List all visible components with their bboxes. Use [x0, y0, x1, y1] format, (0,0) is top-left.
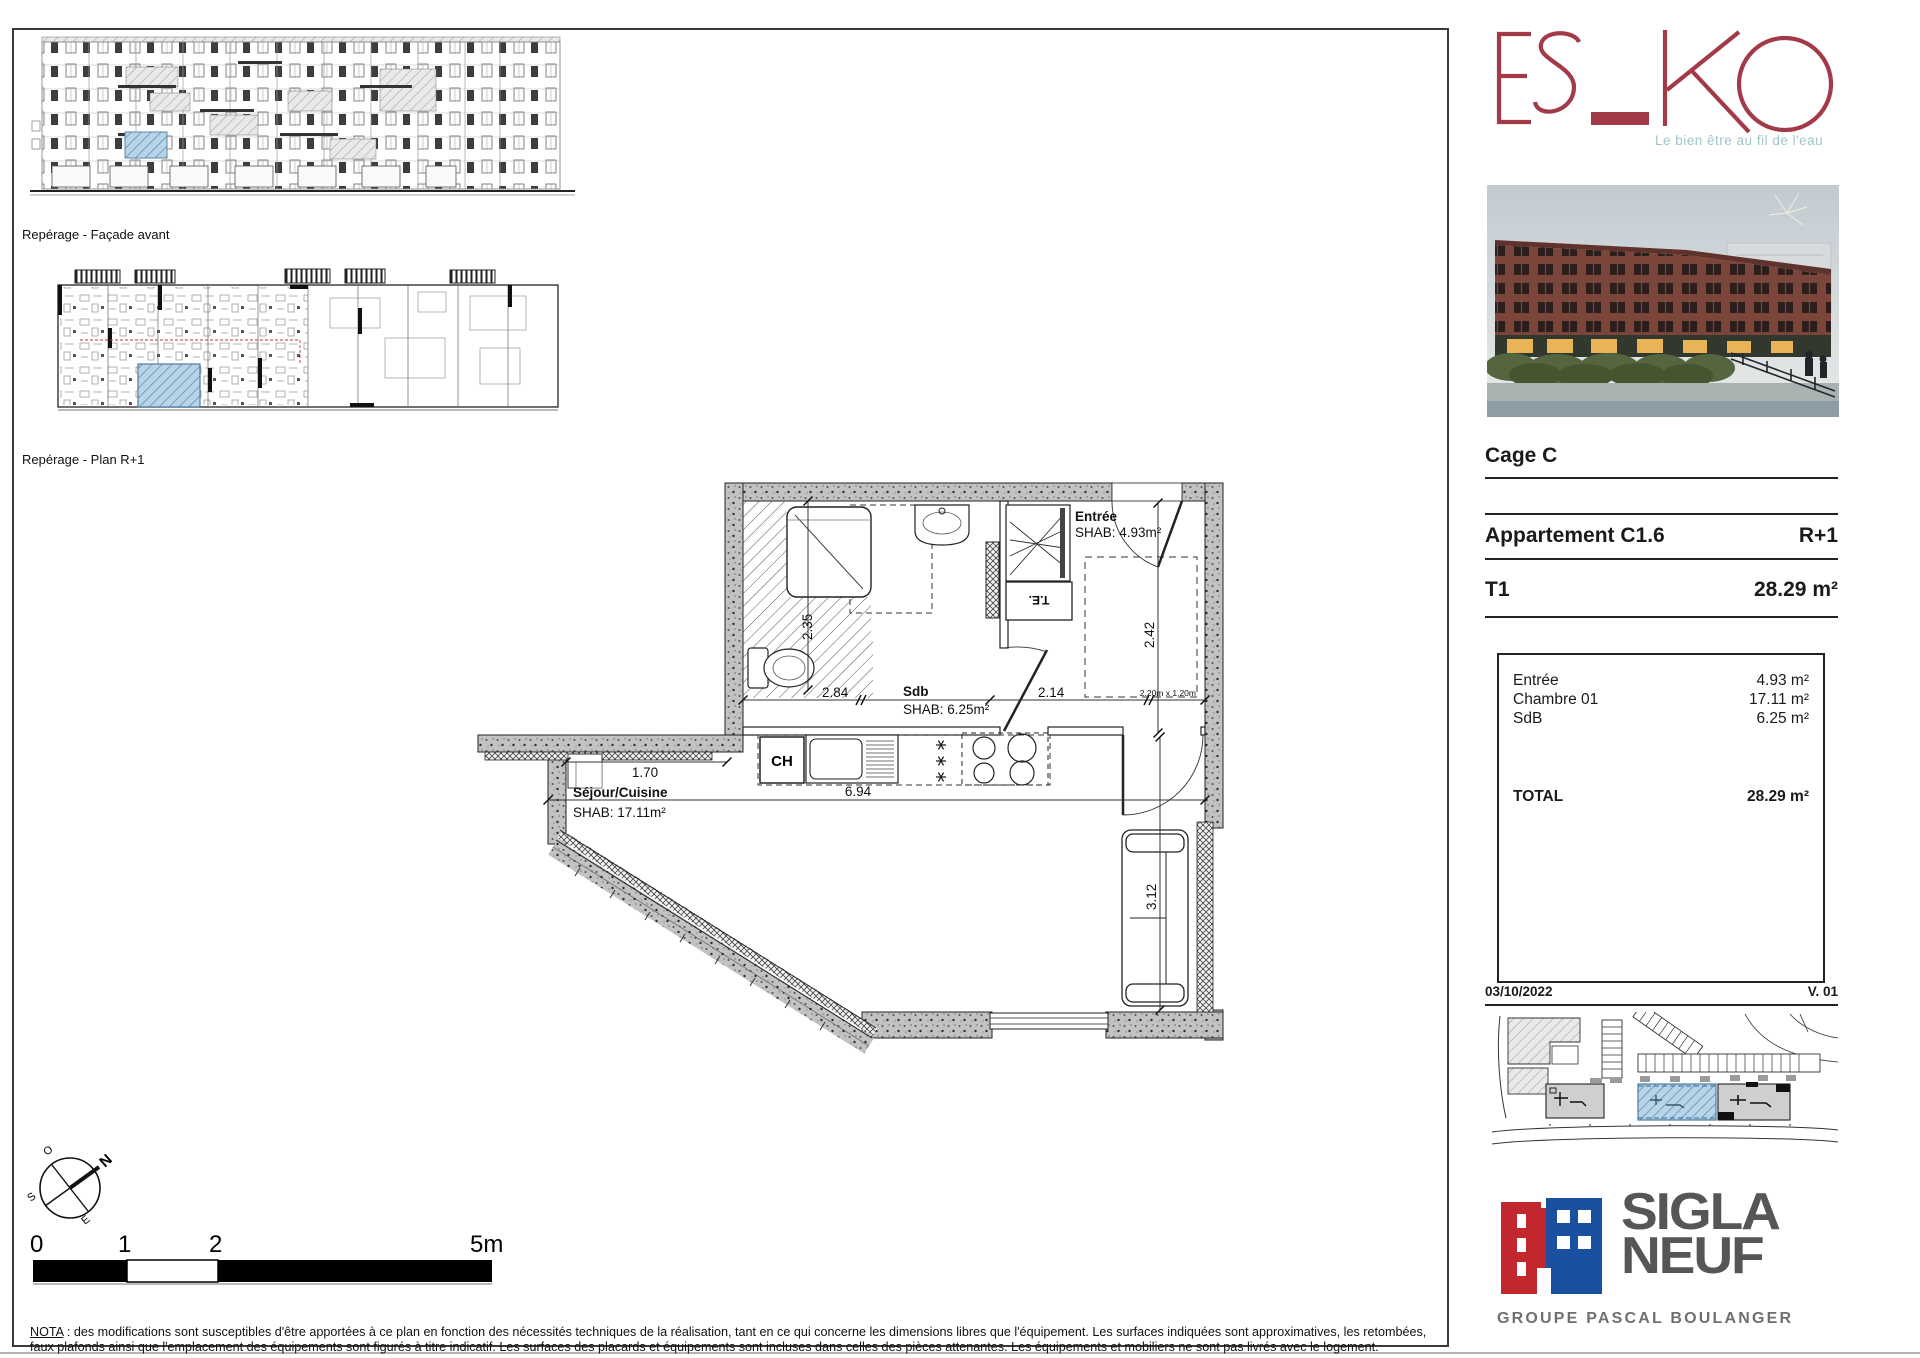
rule-5: [1485, 1004, 1838, 1006]
nota-label: NOTA: [30, 1325, 63, 1339]
total-label: TOTAL: [1513, 788, 1563, 806]
facade-highlighted-unit: [125, 132, 167, 158]
brand-name-2: NEUF: [1621, 1234, 1779, 1278]
area-table: Entrée 4.93 m² Chambre 01 17.11 m² SdB 6…: [1497, 653, 1825, 983]
scale-bar: 0 1 2 5m: [30, 1228, 510, 1290]
diagonal-strip: [1633, 1012, 1703, 1059]
kitchen: CH: [758, 733, 1050, 785]
nota-text: NOTA : des modifications sont susceptibl…: [30, 1325, 1430, 1356]
sejour-shab: SHAB: 17.11m²: [573, 805, 666, 820]
wardrobe: [1006, 505, 1070, 581]
facade-caption: Repérage - Façade avant: [22, 227, 169, 242]
te-label: T.E.: [1029, 593, 1050, 607]
washbasin: [915, 505, 969, 545]
compass-s: S: [25, 1190, 38, 1204]
stairs-strip: [1602, 1020, 1622, 1078]
rule-1: [1485, 477, 1838, 479]
esko-logo: ES_KO Le bien être au fil de l'eau: [1487, 26, 1839, 150]
apartment-level: R+1: [1799, 524, 1838, 548]
scale-2: 2: [209, 1231, 222, 1258]
esko-underscore: [1591, 112, 1649, 125]
compass-o: O: [41, 1143, 56, 1158]
dim-sejour-width: 6.94: [845, 784, 872, 799]
kitchen-sink: [806, 735, 898, 783]
total-value: 28.29 m²: [1747, 788, 1809, 806]
area-value: 17.11 m²: [1749, 690, 1809, 709]
shower: [787, 507, 871, 597]
rule-3: [1485, 558, 1838, 560]
site-plan: [1490, 1012, 1840, 1162]
overview-highlighted-unit: [138, 364, 200, 407]
sdb-label: Sdb: [903, 684, 929, 699]
date: 03/10/2022: [1485, 984, 1553, 999]
rule-4: [1485, 616, 1838, 618]
compass-rose: N O S E: [25, 1140, 125, 1235]
nota-body: : des modifications sont susceptibles d'…: [30, 1325, 1426, 1355]
apartment-row: Appartement C1.6 R+1: [1485, 524, 1838, 548]
apartment-floorplan: T.E. CH: [440, 470, 1250, 1060]
compass-e: E: [79, 1213, 92, 1227]
area-value: 6.25 m²: [1756, 709, 1809, 728]
entree-shab: SHAB: 4.93m²: [1075, 525, 1162, 540]
area-label: Entrée: [1513, 671, 1559, 690]
scale-1: 1: [118, 1231, 131, 1258]
date-row: 03/10/2022 V. 01: [1485, 984, 1838, 999]
scale-5m: 5m: [470, 1231, 503, 1258]
sofa: [1122, 830, 1188, 1006]
ch-label: CH: [771, 753, 793, 770]
te-box: T.E.: [1006, 582, 1072, 620]
dim-sdb-height: 2.35: [800, 614, 815, 640]
dim-wall: 1.70: [632, 765, 658, 780]
dim-sdb-width: 2.84: [822, 685, 849, 700]
entree-label: Entrée: [1075, 509, 1118, 524]
facade-elevation-drawing: [30, 35, 575, 227]
area-label: Chambre 01: [1513, 690, 1598, 709]
dim-entree-width: 2.14: [1038, 685, 1065, 700]
siteplan-building-highlighted: [1638, 1084, 1716, 1120]
apartment-type: T1: [1485, 578, 1510, 602]
area-label: SdB: [1513, 709, 1542, 728]
plan-sheet: Repérage - Façade avant: [0, 0, 1920, 1358]
version: V. 01: [1808, 984, 1838, 999]
area-row-entree: Entrée 4.93 m²: [1513, 671, 1809, 690]
toilet: [748, 648, 814, 688]
window-note: 2.20m x 1.20m: [1140, 688, 1196, 698]
esko-tagline: Le bien être au fil de l'eau: [1655, 133, 1823, 148]
apartment-total-area: 28.29 m²: [1754, 578, 1838, 602]
area-total-row: TOTAL 28.29 m²: [1513, 788, 1809, 806]
rule-2: [1485, 513, 1838, 515]
dim-sejour-height: 3.12: [1144, 884, 1159, 910]
dim-entree-height: 2.42: [1142, 622, 1157, 648]
radiator: [986, 542, 999, 618]
plan-overview-caption: Repérage - Plan R+1: [22, 452, 145, 467]
sigla-buildings-icon: [1497, 1188, 1607, 1298]
area-value: 4.93 m²: [1756, 671, 1809, 690]
area-row-sdb: SdB 6.25 m²: [1513, 709, 1809, 728]
scale-0: 0: [30, 1231, 43, 1258]
cooktop: [962, 733, 1048, 785]
brand-group: GROUPE PASCAL BOULANGER: [1497, 1310, 1837, 1328]
plan-overview-drawing: [50, 268, 570, 446]
area-row-chambre: Chambre 01 17.11 m²: [1513, 690, 1809, 709]
sdb-shab: SHAB: 6.25m²: [903, 702, 990, 717]
sejour-label: Séjour/Cuisine: [573, 785, 668, 800]
apartment-title: Appartement C1.6: [1485, 524, 1665, 548]
siteplan-building-left: [1546, 1084, 1604, 1118]
parking-strip: [1638, 1054, 1820, 1072]
sejour-door: [1123, 735, 1203, 815]
type-row: T1 28.29 m²: [1485, 578, 1838, 602]
sejour-side-window: [1197, 822, 1213, 1012]
building-photo: [1487, 185, 1839, 417]
sejour-bottom-window: [990, 1013, 1108, 1029]
cage-title: Cage C: [1485, 444, 1557, 468]
sigla-neuf-logo: SIGLA NEUF GROUPE PASCAL BOULANGER: [1497, 1188, 1837, 1328]
